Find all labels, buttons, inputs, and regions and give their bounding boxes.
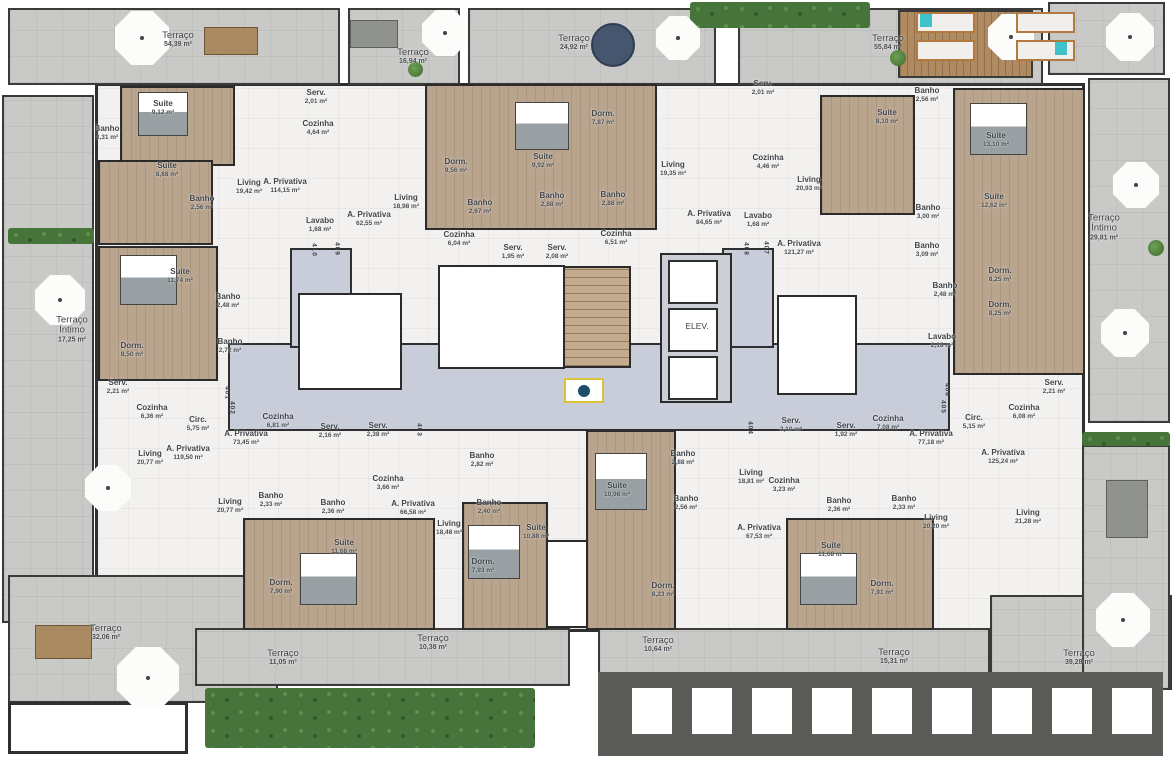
- roof-panel: [692, 688, 732, 734]
- room-label: Dorm.9,56 m²: [444, 158, 467, 174]
- room-label: A. Privativa84,65 m²: [687, 210, 731, 226]
- hedge-left: [8, 228, 94, 244]
- room-label: Cozinha7,08 m²: [872, 415, 903, 431]
- room-label: Cozinha4,64 m²: [302, 120, 333, 136]
- room-label: Serv.1,95 m²: [502, 244, 524, 260]
- room-label: Terraço16,94 m²: [397, 48, 429, 66]
- towel-icon: [1055, 42, 1067, 55]
- room-label: Suite10,88 m²: [523, 524, 549, 540]
- room-label: Suite11,68 m²: [818, 542, 844, 558]
- room-label: Terraço Íntimo29,81 m²: [1078, 214, 1130, 243]
- room-label: Terraço15,31 m²: [878, 648, 910, 666]
- room-label: Banho2,56 m²: [674, 495, 699, 511]
- room-label: A. Privativa119,50 m²: [166, 445, 210, 461]
- room-label: Serv.2,08 m²: [546, 244, 568, 260]
- room-label: Banho3,00 m²: [916, 204, 941, 220]
- hedge-right-lower: [1082, 432, 1170, 446]
- room-label: A. Privativa66,58 m²: [391, 500, 435, 516]
- room-label: Cozinha3,66 m²: [372, 475, 403, 491]
- unit-door-number: 410: [311, 243, 318, 257]
- room-label: Lavabo2,18 m²: [928, 333, 956, 349]
- room-label: Terraço10,38 m²: [417, 634, 449, 652]
- room-label: Living20,20 m²: [923, 514, 949, 530]
- room-label: Living18,81 m²: [738, 469, 764, 485]
- stairs: [563, 266, 631, 368]
- unit-door-number: 404: [747, 421, 754, 435]
- dining-table-icon: [350, 20, 398, 48]
- roof-panel: [1112, 688, 1152, 734]
- room-label: Banho2,82 m²: [470, 452, 495, 468]
- room-label: Cozinha6,36 m²: [136, 404, 167, 420]
- roof-panel: [872, 688, 912, 734]
- room-label: A. Privativa77,18 m²: [909, 430, 953, 446]
- room-label: Living20,77 m²: [137, 450, 163, 466]
- room-label: Suite9,92 m²: [532, 153, 554, 169]
- shaft-void-3: [777, 295, 857, 395]
- terrace-left-column: [2, 95, 94, 623]
- room-label: Banho2,88 m²: [601, 191, 626, 207]
- dining-table-icon: [35, 625, 92, 659]
- room-label: Living20,93 m²: [796, 176, 822, 192]
- shaft-void-1: [438, 265, 565, 369]
- room-label: Suite11,74 m²: [167, 268, 193, 284]
- room-label: Suite12,62 m²: [981, 193, 1007, 209]
- unit-door-number: 401: [224, 386, 231, 400]
- room-label: Banho2,88 m²: [671, 450, 696, 466]
- room-label: Circ.5,75 m²: [187, 416, 209, 432]
- plant-icon: [1148, 240, 1164, 256]
- room-label: Banho2,48 m²: [933, 282, 958, 298]
- room-label: Suite8,68 m²: [156, 162, 178, 178]
- room-label: Circ.5,15 m²: [963, 414, 985, 430]
- roof-band: [598, 672, 1163, 756]
- room-label: Cozinha6,51 m²: [600, 230, 631, 246]
- roof-panel: [1052, 688, 1092, 734]
- unit-door-number: 409: [334, 242, 341, 256]
- towel-icon: [920, 14, 932, 27]
- room-label: Dorm.8,23 m²: [651, 582, 674, 598]
- room-label: Cozinha3,23 m²: [768, 477, 799, 493]
- room-label: Terraço39,28 m²: [1063, 649, 1095, 667]
- room-label: Dorm.7,91 m²: [870, 580, 893, 596]
- room-label: Living20,77 m²: [217, 498, 243, 514]
- unit-door-number: 403: [416, 423, 423, 437]
- room-label: Terraço55,84 m²: [872, 34, 904, 52]
- plant-icon: [890, 50, 906, 66]
- room-label: Banho2,33 m²: [892, 495, 917, 511]
- room-label: Banho2,56 m²: [190, 195, 215, 211]
- lounger-icon: [916, 40, 975, 61]
- unit-door-number: 406: [944, 383, 951, 397]
- room-label: Banho2,36 m²: [827, 497, 852, 513]
- keyplan-marker: [564, 378, 604, 403]
- room-label: Suite8,10 m²: [876, 109, 898, 125]
- room-label: A. Privativa73,45 m²: [224, 430, 268, 446]
- unit-door-number: 402: [229, 401, 236, 415]
- room-label: Cozinha4,46 m²: [752, 154, 783, 170]
- room-label: A. Privativa125,24 m²: [981, 449, 1025, 465]
- hedge-top: [690, 2, 870, 28]
- unit-door-number: 407: [763, 241, 770, 255]
- roof-panel: [932, 688, 972, 734]
- room-label: Suite11,68 m²: [331, 539, 357, 555]
- elevator-label: ELEV.: [685, 321, 708, 331]
- room-label: Terraço Íntimo17,25 m²: [46, 316, 98, 345]
- room-label: Living19,42 m²: [236, 179, 262, 195]
- room-label: Serv.2,01 m²: [752, 80, 774, 96]
- dining-table-icon: [204, 27, 258, 55]
- room-label: Terraço32,06 m²: [90, 624, 122, 642]
- room-label: Lavabo1,68 m²: [744, 212, 772, 228]
- bed-icon: [300, 553, 357, 605]
- room-label: Terraço54,39 m²: [162, 31, 194, 49]
- roof-panel: [992, 688, 1032, 734]
- room-label: Serv.2,16 m²: [319, 423, 341, 439]
- room-label: Lavabo1,68 m²: [306, 217, 334, 233]
- room-label: Banho3,31 m²: [95, 125, 120, 141]
- room-label: Living18,98 m²: [393, 194, 419, 210]
- room-label: Terraço10,64 m²: [642, 636, 674, 654]
- room-label: A. Privativa62,55 m²: [347, 211, 391, 227]
- room-label: Dorm.8,50 m²: [120, 342, 143, 358]
- shaft-void-2: [298, 293, 402, 390]
- room-label: Banho2,72 m²: [218, 338, 243, 354]
- room-label: Dorm.7,87 m²: [591, 110, 614, 126]
- room-label: Living21,28 m²: [1015, 509, 1041, 525]
- room-label: Serv.2,21 m²: [107, 379, 129, 395]
- room-label: Banho2,36 m²: [321, 499, 346, 515]
- roof-panel: [752, 688, 792, 734]
- bed-icon: [515, 102, 569, 150]
- bed-icon: [800, 553, 857, 605]
- room-label: Banho2,67 m²: [468, 199, 493, 215]
- room-label: Suite9,12 m²: [152, 100, 174, 116]
- room-label: Banho2,48 m²: [216, 293, 241, 309]
- terrace-bottom-strip-1: [195, 628, 570, 686]
- room-label: A. Privativa114,15 m²: [263, 178, 307, 194]
- unit-door-number: 405: [940, 400, 947, 414]
- room-label: Cozinha6,08 m²: [1008, 404, 1039, 420]
- room-label: Terraço11,05 m²: [267, 649, 299, 667]
- room-label: Serv.2,21 m²: [1043, 379, 1065, 395]
- room-label: Banho3,09 m²: [915, 242, 940, 258]
- room-label: Dorm.8,25 m²: [988, 267, 1011, 283]
- room-label: Dorm.7,90 m²: [269, 579, 292, 595]
- room-label: Suite13,10 m²: [983, 132, 1009, 148]
- garden-bottom-left: [205, 688, 535, 748]
- fire-pit-icon: [591, 23, 635, 67]
- unit-door-number: 408: [743, 242, 750, 256]
- roof-panel: [812, 688, 852, 734]
- room-label: Serv.2,01 m²: [305, 89, 327, 105]
- room-label: Banho2,40 m²: [477, 499, 502, 515]
- room-label: A. Privativa121,27 m²: [777, 240, 821, 256]
- lounger-icon: [1016, 12, 1075, 33]
- umbrella-icon: [1113, 162, 1159, 208]
- roof-panel: [632, 688, 672, 734]
- room-label: Living19,35 m²: [660, 161, 686, 177]
- room-label: Cozinha6,04 m²: [443, 231, 474, 247]
- room-label: A. Privativa67,53 m²: [737, 524, 781, 540]
- room-label: Serv.2,38 m²: [367, 422, 389, 438]
- elevator-cab: [668, 260, 718, 304]
- room-label: Banho2,56 m²: [915, 87, 940, 103]
- dining-table-icon: [1106, 480, 1148, 538]
- room-label: Cozinha6,81 m²: [262, 413, 293, 429]
- lower-left-structure: [8, 702, 188, 754]
- room-label: Suite10,98 m²: [604, 482, 630, 498]
- room-label: Banho2,33 m²: [259, 492, 284, 508]
- room-label: Dorm.8,25 m²: [988, 301, 1011, 317]
- bedroom-floor: [820, 95, 915, 215]
- elevator-cab: [668, 356, 718, 400]
- room-label: Living18,48 m²: [436, 520, 462, 536]
- floor-plan: ELEV.: [0, 0, 1173, 759]
- room-label: Serv.2,10 m²: [780, 417, 802, 433]
- room-label: Banho2,88 m²: [540, 192, 565, 208]
- room-label: Serv.1,92 m²: [835, 422, 857, 438]
- room-label: Terraço24,92 m²: [558, 34, 590, 52]
- room-label: Dorm.7,93 m²: [471, 558, 494, 574]
